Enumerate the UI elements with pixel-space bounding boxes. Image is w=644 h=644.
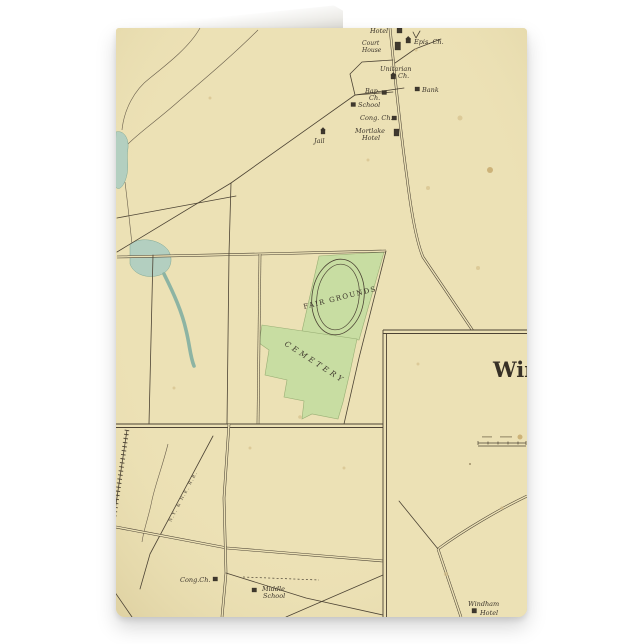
building-icon	[382, 91, 387, 95]
product-photo: N.Y. & N.E. R.R. Cong.Ch. Middle School	[0, 0, 644, 644]
jail-label: Jail	[312, 137, 325, 145]
building-icon	[395, 42, 401, 50]
hotel-label: Hotel	[369, 28, 388, 35]
building-icon	[394, 129, 399, 136]
card-back-fold	[116, 4, 343, 30]
cong-church-label: Cong.Ch.	[180, 576, 211, 584]
court-house-label: House	[361, 47, 382, 54]
windham-hotel-label: Windham	[468, 600, 499, 608]
epis-church-label: Epis. Ch.	[413, 38, 444, 46]
building-icon	[213, 577, 218, 581]
school-label: School	[263, 592, 285, 600]
inset-windham: Win Windham Hotel	[383, 330, 527, 617]
building-icon	[392, 116, 397, 120]
mortlake-hotel-label: Hotel	[361, 134, 380, 142]
map-artwork: N.Y. & N.E. R.R. Cong.Ch. Middle School	[116, 28, 527, 617]
bank-label: Bank	[421, 86, 439, 94]
cong-church-label: Cong. Ch.	[360, 114, 393, 122]
building-icon	[472, 609, 477, 614]
building-icon	[351, 103, 356, 107]
unitarian-church-label: Ch.	[398, 72, 409, 80]
inset-title: Win	[492, 357, 527, 382]
building-icon	[252, 588, 257, 592]
windham-hotel-label: Hotel	[479, 609, 498, 617]
court-house-label: Court	[362, 40, 380, 47]
school-label: School	[358, 101, 380, 109]
building-icon	[397, 28, 402, 33]
building-icon	[415, 87, 420, 91]
greeting-card-front[interactable]: N.Y. & N.E. R.R. Cong.Ch. Middle School	[116, 28, 527, 617]
